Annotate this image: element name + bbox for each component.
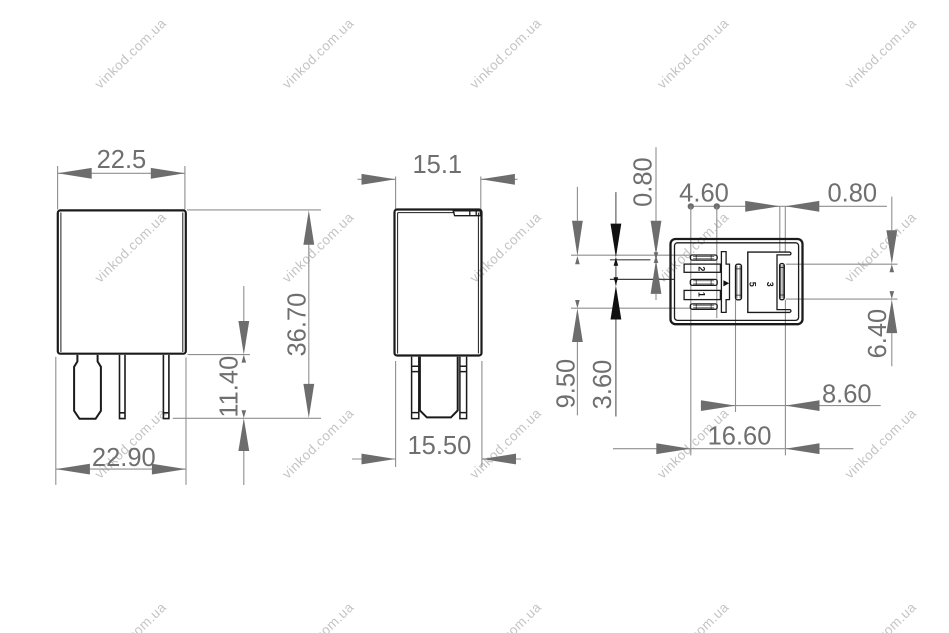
- svg-text:3.60: 3.60: [589, 360, 617, 410]
- svg-text:2: 2: [697, 266, 707, 271]
- svg-text:6.40: 6.40: [864, 309, 892, 359]
- svg-text:1: 1: [697, 292, 707, 297]
- svg-text:22.90: 22.90: [92, 444, 156, 472]
- svg-text:15.1: 15.1: [412, 151, 462, 179]
- svg-text:15.50: 15.50: [407, 432, 471, 460]
- svg-text:36.70: 36.70: [284, 293, 312, 357]
- svg-text:0.80: 0.80: [630, 157, 658, 207]
- svg-text:11.40: 11.40: [216, 356, 244, 418]
- svg-text:9.50: 9.50: [553, 359, 581, 409]
- svg-text:22.5: 22.5: [97, 146, 147, 174]
- svg-text:0.80: 0.80: [827, 180, 877, 208]
- svg-text:4.60: 4.60: [679, 180, 729, 208]
- svg-text:8.60: 8.60: [822, 380, 872, 408]
- svg-text:5: 5: [747, 282, 757, 287]
- svg-text:16.60: 16.60: [708, 423, 772, 451]
- svg-text:3: 3: [765, 282, 775, 287]
